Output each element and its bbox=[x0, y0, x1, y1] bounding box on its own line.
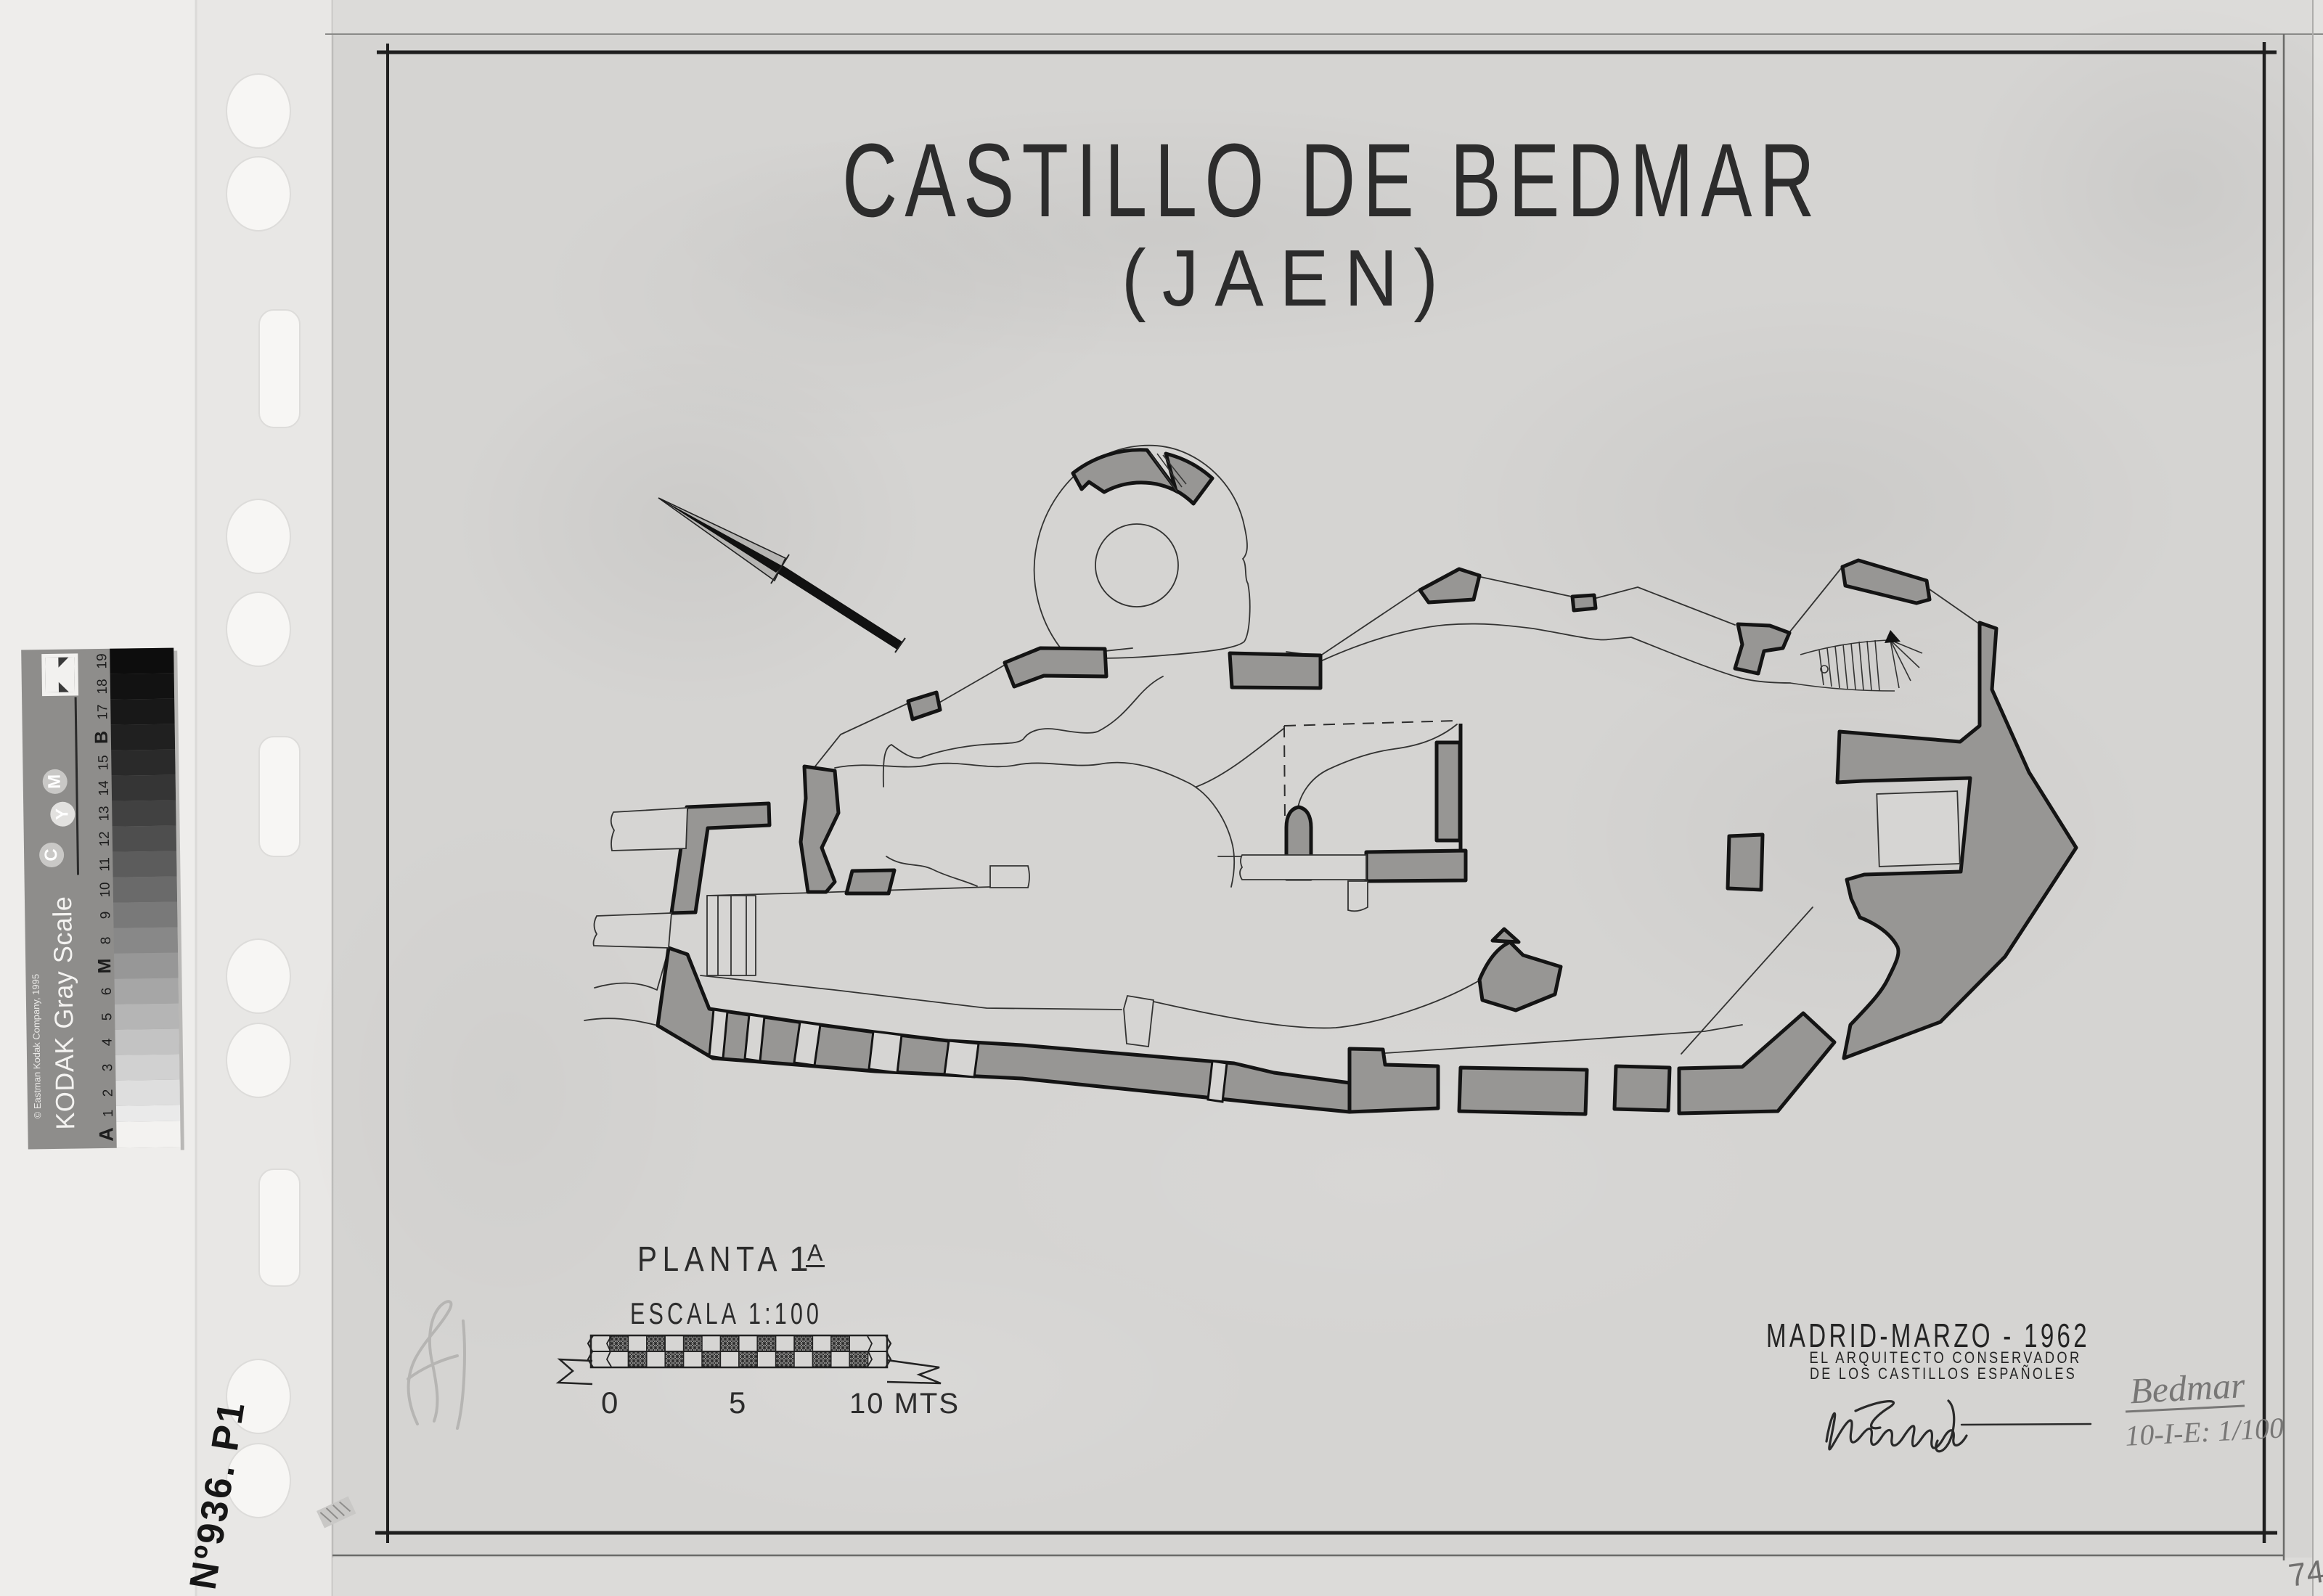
svg-text:15: 15 bbox=[96, 755, 111, 770]
svg-text:18: 18 bbox=[95, 679, 110, 694]
svg-text:PLANTA: PLANTA bbox=[637, 1240, 783, 1279]
svg-text:Bedmar: Bedmar bbox=[2129, 1364, 2247, 1411]
svg-text:9: 9 bbox=[98, 911, 113, 919]
svg-text:11: 11 bbox=[97, 857, 113, 872]
svg-text:ESCALA 1:100: ESCALA 1:100 bbox=[630, 1296, 822, 1330]
svg-text:A: A bbox=[95, 1127, 117, 1142]
svg-text:0: 0 bbox=[601, 1386, 618, 1420]
svg-text:C: C bbox=[41, 848, 61, 862]
svg-text:3: 3 bbox=[100, 1063, 115, 1071]
svg-text:1: 1 bbox=[789, 1240, 809, 1279]
svg-text:KODAK Gray Scale: KODAK Gray Scale bbox=[47, 896, 80, 1130]
svg-text:A: A bbox=[807, 1240, 823, 1266]
svg-text:B: B bbox=[91, 731, 112, 744]
svg-text:Y: Y bbox=[52, 809, 72, 820]
svg-text:14: 14 bbox=[97, 780, 112, 796]
svg-text:© Eastman Kodak Company, 1995: © Eastman Kodak Company, 1995 bbox=[30, 974, 43, 1119]
svg-text:4: 4 bbox=[100, 1038, 115, 1046]
svg-text:5: 5 bbox=[99, 1012, 115, 1020]
svg-text:74: 74 bbox=[2287, 1554, 2323, 1594]
svg-text:DE LOS CASTILLOS ESPAÑOLES: DE LOS CASTILLOS ESPAÑOLES bbox=[1810, 1364, 2077, 1383]
svg-text:10: 10 bbox=[98, 882, 113, 897]
svg-text:8: 8 bbox=[99, 936, 114, 944]
svg-text:2: 2 bbox=[101, 1089, 116, 1097]
svg-text:6: 6 bbox=[99, 987, 115, 995]
svg-text:19: 19 bbox=[94, 653, 110, 668]
svg-text:M: M bbox=[45, 774, 65, 789]
svg-text:1: 1 bbox=[101, 1109, 116, 1117]
svg-text:12: 12 bbox=[97, 831, 113, 846]
svg-text:17: 17 bbox=[95, 704, 110, 719]
svg-text:10 MTS: 10 MTS bbox=[849, 1388, 960, 1420]
svg-text:CASTILLO DE BEDMAR: CASTILLO DE BEDMAR bbox=[842, 122, 1822, 239]
svg-text:13: 13 bbox=[97, 806, 112, 821]
svg-text:(JAEN): (JAEN) bbox=[1122, 234, 1454, 323]
svg-text:M: M bbox=[94, 958, 115, 973]
svg-text:5: 5 bbox=[729, 1386, 746, 1420]
